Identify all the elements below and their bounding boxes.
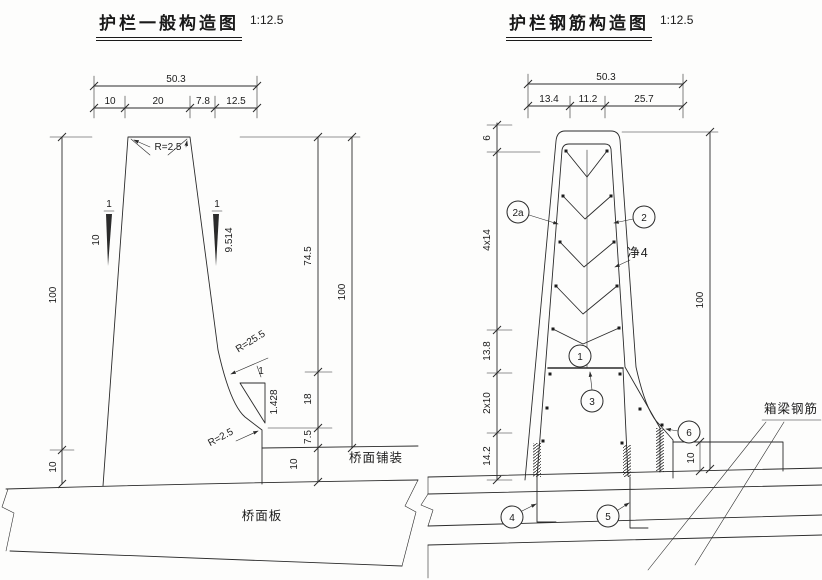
- right-top-dimension-chain: 50.3 13.4 11.2 25.7: [524, 72, 687, 118]
- deck-label: 桥面板: [242, 509, 283, 523]
- dim-6: 6: [482, 135, 493, 141]
- deck-slab-right-drawing: [421, 468, 822, 578]
- radius-top-annotation: R=2.5: [131, 139, 187, 155]
- guardrail-outline-rebar-view: [525, 131, 673, 480]
- drawing-sheet: 护栏一般构造图 1:12.5 护栏钢筋构造图 1:12.5 50.3 10 20…: [0, 0, 822, 580]
- girder-rebar-label: 箱梁钢筋: [764, 401, 818, 416]
- callout-2: 2: [641, 213, 647, 224]
- dim-74-5: 74.5: [303, 246, 314, 266]
- slope-marker-left: 1 10: [91, 199, 114, 266]
- slope-marker-right: 1 9.514: [212, 199, 235, 266]
- radius-toe-annotation: R=2.5: [206, 426, 258, 449]
- rebar-callouts: 2a 2 1 3 4 5 6: [501, 201, 700, 528]
- dim-18: 18: [303, 393, 314, 405]
- left-top-dimension-chain: 50.3 10 20 7.8 12.5: [90, 74, 261, 118]
- pavement-label: 桥面铺装: [349, 451, 403, 465]
- dim-pavement-10-r: 10: [686, 452, 697, 464]
- lap-splice-hatches: [533, 428, 664, 477]
- guardrail-drawings: 50.3 10 20 7.8 12.5 R=2.5 1 10 1 9.514: [0, 0, 822, 580]
- clear-cover-label: 净4: [627, 246, 648, 260]
- slope-right-rise: 1: [214, 199, 220, 210]
- dim-13-8: 13.8: [482, 341, 493, 361]
- dim-deck-10-left: 10: [48, 461, 59, 473]
- left-dimension-column-right-drawing: 6 4x14 13.8 2x10 14.2: [482, 121, 540, 484]
- dim-height-100-right: 100: [337, 283, 348, 300]
- slope-left-run: 10: [91, 234, 102, 246]
- callout-5: 5: [605, 512, 611, 523]
- pavement-left-drawing: 桥面铺装: [262, 446, 418, 465]
- callout-4: 4: [509, 513, 515, 524]
- slope-right-run: 9.514: [224, 227, 235, 252]
- dim-height-100-r: 100: [695, 291, 706, 308]
- dim-2x10: 2x10: [482, 392, 493, 414]
- dim-total-width: 50.3: [166, 74, 186, 85]
- callout-2a: 2a: [512, 208, 524, 219]
- slope-toe-run: 1.428: [269, 389, 280, 414]
- right-height-dimensions: 74.5 18 7.5 10 100: [240, 133, 360, 486]
- right-height-dimension-right-drawing: 100: [622, 128, 718, 473]
- callout-6: 6: [686, 428, 692, 439]
- slope-triangle-toe: 1 1.428: [240, 366, 280, 423]
- dim-seg-7-8: 7.8: [196, 96, 210, 107]
- dim-seg-12-5: 12.5: [226, 96, 246, 107]
- dim-seg-13-4: 13.4: [539, 94, 559, 105]
- clear-cover-annotation: 净4: [615, 246, 649, 267]
- dim-seg-11-2: 11.2: [579, 94, 598, 105]
- dim-4x14: 4x14: [482, 229, 493, 251]
- deck-slab-left-drawing: 桥面板: [2, 480, 418, 566]
- callout-3: 3: [589, 397, 595, 408]
- dim-pavement-10: 10: [289, 458, 300, 470]
- left-height-dimension: 100 10: [48, 133, 92, 488]
- callout-1: 1: [577, 352, 583, 363]
- dim-seg-25-7: 25.7: [634, 94, 654, 105]
- dim-14-2: 14.2: [482, 446, 493, 466]
- radius-toe-label: R=2.5: [206, 426, 235, 449]
- radius-top-label: R=2.5: [155, 142, 182, 153]
- radius-mid-label: R=25.5: [234, 328, 268, 355]
- dim-seg-10: 10: [104, 96, 116, 107]
- slope-left-rise: 1: [106, 199, 112, 210]
- dim-height-100-left: 100: [48, 286, 59, 303]
- dim-total-width-r: 50.3: [596, 72, 616, 83]
- dim-7-5: 7.5: [303, 430, 314, 444]
- guardrail-profile: [103, 137, 262, 486]
- dim-seg-20: 20: [152, 96, 164, 107]
